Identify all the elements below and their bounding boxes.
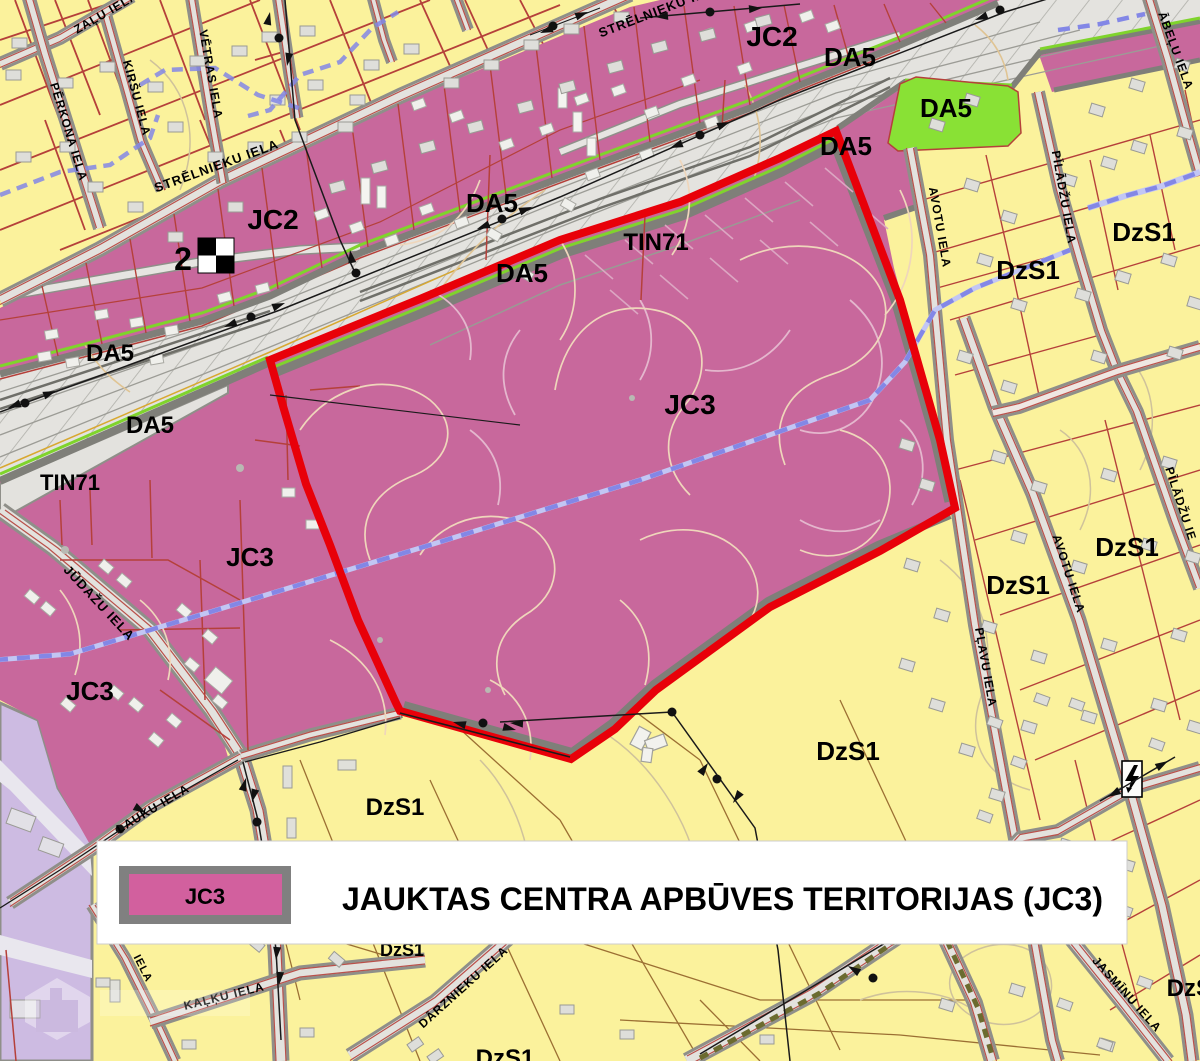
- svg-text:DzS1: DzS1: [476, 1045, 535, 1061]
- svg-text:DzS1: DzS1: [1095, 532, 1159, 562]
- svg-text:DA5: DA5: [820, 131, 872, 161]
- svg-text:JC3: JC3: [185, 884, 225, 909]
- svg-text:DzS1: DzS1: [1112, 217, 1176, 247]
- svg-text:DA5: DA5: [824, 42, 876, 72]
- svg-text:DA5: DA5: [496, 258, 548, 288]
- svg-text:DzS1: DzS1: [366, 794, 425, 821]
- svg-text:JC3: JC3: [664, 389, 715, 420]
- svg-text:2: 2: [174, 241, 192, 277]
- svg-text:DA5: DA5: [86, 340, 134, 367]
- svg-text:JC2: JC2: [746, 21, 797, 52]
- svg-text:JAUKTAS CENTRA APBŪVES TERITOR: JAUKTAS CENTRA APBŪVES TERITORIJAS (JC3): [342, 881, 1103, 917]
- svg-text:TIN71: TIN71: [623, 229, 688, 256]
- svg-text:DzS1: DzS1: [986, 570, 1050, 600]
- svg-text:DzS1: DzS1: [816, 736, 880, 766]
- svg-text:DA5: DA5: [466, 188, 518, 218]
- svg-text:DA5: DA5: [126, 412, 174, 439]
- svg-text:DzS1: DzS1: [996, 255, 1060, 285]
- svg-text:DA5: DA5: [920, 93, 972, 123]
- svg-text:DzS1: DzS1: [1167, 975, 1200, 1002]
- svg-text:JC3: JC3: [226, 542, 274, 572]
- svg-text:JC2: JC2: [247, 204, 298, 235]
- svg-text:JC3: JC3: [66, 676, 114, 706]
- svg-text:TIN71: TIN71: [40, 470, 100, 495]
